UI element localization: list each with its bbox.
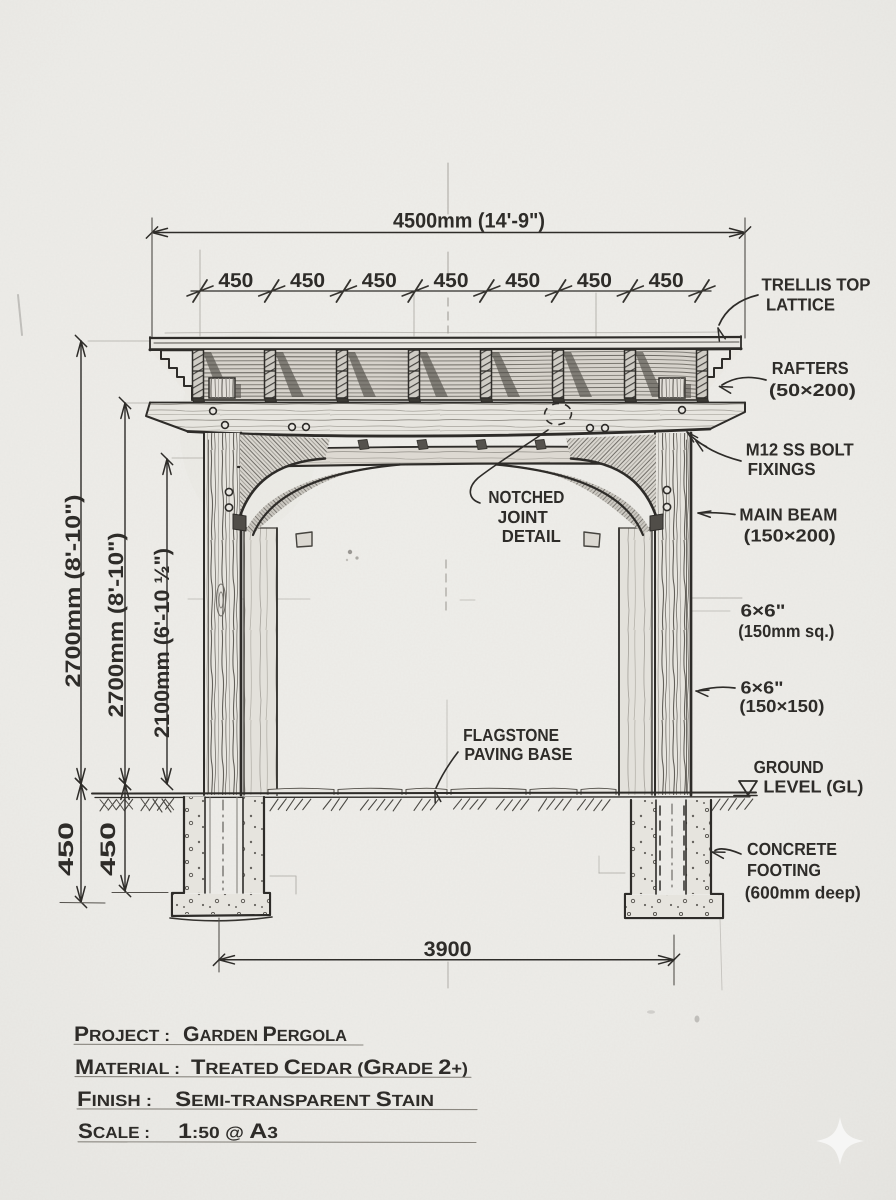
svg-text:2700mm (8'-10"): 2700mm (8'-10") [105,533,128,718]
svg-text:450: 450 [97,822,120,876]
svg-text:GROUND: GROUND [754,757,824,777]
svg-text:2700mm (8'-10"): 2700mm (8'-10") [62,495,85,688]
svg-text:450: 450 [577,270,612,292]
svg-text:SCALE :: SCALE : [78,1120,150,1143]
svg-text:(150×200): (150×200) [744,525,836,545]
svg-text:MAIN BEAM: MAIN BEAM [739,505,837,525]
svg-text:6×6": 6×6" [741,677,784,697]
svg-text:PAVING BASE: PAVING BASE [464,744,572,764]
svg-text:4500mm (14'-9"): 4500mm (14'-9") [393,210,545,233]
svg-text:TREATED CEDAR (GRADE 2+): TREATED CEDAR (GRADE 2+) [191,1056,468,1079]
svg-text:450: 450 [290,270,325,292]
svg-text:PROJECT :: PROJECT : [74,1023,170,1046]
svg-text:450: 450 [649,270,684,292]
svg-text:JOINT: JOINT [498,507,548,527]
svg-text:GARDEN PERGOLA: GARDEN PERGOLA [183,1023,347,1046]
svg-text:3900: 3900 [424,938,472,961]
svg-text:RAFTERS: RAFTERS [772,358,849,378]
svg-text:NOTCHED: NOTCHED [488,487,564,507]
svg-text:450: 450 [505,270,540,292]
svg-text:LATTICE: LATTICE [766,294,835,314]
svg-text:6×6": 6×6" [741,601,786,621]
svg-text:FLAGSTONE: FLAGSTONE [463,725,559,745]
svg-text:(150×150): (150×150) [739,696,824,716]
svg-text:(600mm deep): (600mm deep) [745,883,861,903]
svg-text:FOOTING: FOOTING [747,860,821,880]
svg-text:M12 SS BOLT: M12 SS BOLT [746,439,854,459]
svg-text:TRELLIS TOP: TRELLIS TOP [762,274,871,294]
svg-text:(50×200): (50×200) [769,380,856,400]
svg-text:LEVEL (GL): LEVEL (GL) [763,777,863,797]
svg-text:SEMI-TRANSPARENT STAIN: SEMI-TRANSPARENT STAIN [175,1088,434,1111]
svg-text:1:50 @ A3: 1:50 @ A3 [178,1120,278,1143]
svg-text:FIXINGS: FIXINGS [748,459,816,479]
svg-text:450: 450 [55,822,78,876]
svg-text:2100mm (6'-10 ½"): 2100mm (6'-10 ½") [151,548,174,738]
svg-text:450: 450 [362,270,397,292]
svg-text:DETAIL: DETAIL [502,526,561,546]
svg-text:450: 450 [218,270,253,292]
svg-text:450: 450 [434,270,469,292]
svg-text:CONCRETE: CONCRETE [747,839,837,859]
svg-text:MATERIAL :: MATERIAL : [75,1056,180,1079]
svg-text:(150mm sq.): (150mm sq.) [738,621,834,641]
svg-text:FINISH :: FINISH : [77,1088,152,1111]
